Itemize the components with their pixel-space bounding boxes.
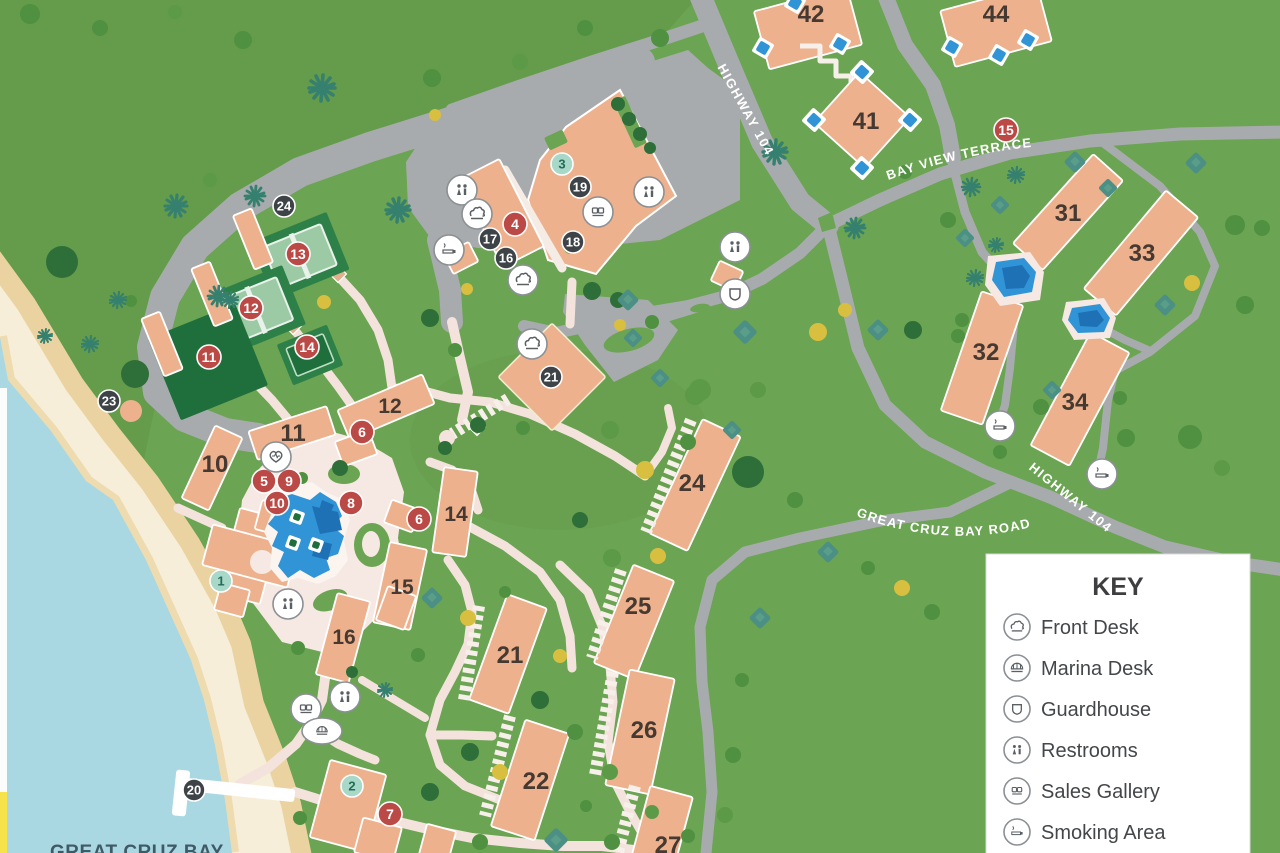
svg-text:7: 7 [386,806,394,822]
svg-text:21: 21 [544,370,558,385]
svg-text:34: 34 [1062,389,1089,416]
svg-text:1: 1 [217,574,224,589]
svg-text:12: 12 [378,395,401,418]
svg-text:23: 23 [102,394,116,409]
svg-text:6: 6 [358,424,366,440]
svg-text:44: 44 [983,1,1010,28]
svg-text:Sales Gallery: Sales Gallery [1041,781,1160,803]
svg-text:25: 25 [625,593,652,620]
svg-text:20: 20 [187,783,201,798]
svg-text:21: 21 [497,642,524,669]
svg-text:15: 15 [998,122,1014,138]
svg-text:11: 11 [280,420,305,447]
svg-text:4: 4 [511,216,519,232]
svg-text:Restrooms: Restrooms [1041,740,1138,762]
svg-text:41: 41 [853,108,880,135]
svg-text:16: 16 [332,626,355,649]
svg-text:Guardhouse: Guardhouse [1041,699,1151,721]
svg-text:6: 6 [415,511,423,527]
svg-text:13: 13 [290,246,306,262]
svg-text:11: 11 [202,349,217,365]
svg-text:31: 31 [1055,200,1082,227]
svg-text:18: 18 [566,235,580,250]
svg-text:14: 14 [299,339,315,355]
svg-text:10: 10 [269,495,285,511]
svg-text:22: 22 [523,768,550,795]
svg-text:19: 19 [573,180,587,195]
svg-text:Marina Desk: Marina Desk [1041,658,1154,680]
svg-text:Front Desk: Front Desk [1041,617,1140,639]
svg-text:26: 26 [631,717,658,744]
svg-text:14: 14 [444,503,468,526]
svg-text:KEY: KEY [1092,573,1144,601]
svg-text:GREAT CRUZ BAY: GREAT CRUZ BAY [50,842,224,853]
svg-text:10: 10 [202,451,229,478]
svg-text:32: 32 [973,339,1000,366]
svg-text:15: 15 [390,576,414,599]
svg-text:33: 33 [1129,240,1156,267]
svg-text:27: 27 [655,832,682,853]
svg-text:42: 42 [798,1,825,28]
svg-text:16: 16 [499,251,513,266]
svg-text:9: 9 [285,473,293,489]
svg-text:5: 5 [260,473,268,489]
svg-text:2: 2 [348,779,355,794]
svg-text:8: 8 [347,495,355,511]
svg-text:24: 24 [277,199,292,214]
svg-text:12: 12 [243,300,259,316]
svg-text:17: 17 [483,232,497,247]
svg-text:24: 24 [679,470,706,497]
svg-text:3: 3 [558,157,565,172]
svg-text:Smoking Area: Smoking Area [1041,822,1166,844]
